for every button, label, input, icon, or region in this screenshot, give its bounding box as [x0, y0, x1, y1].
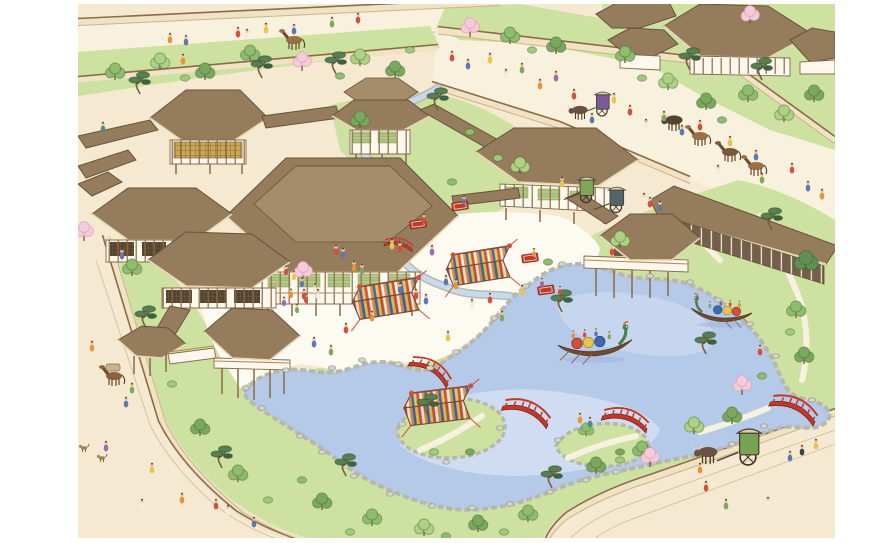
illustration-page: Bird's-eye watercolor illustration of a …	[0, 0, 890, 543]
palace-illustration: Bird's-eye watercolor illustration of a …	[0, 0, 890, 543]
